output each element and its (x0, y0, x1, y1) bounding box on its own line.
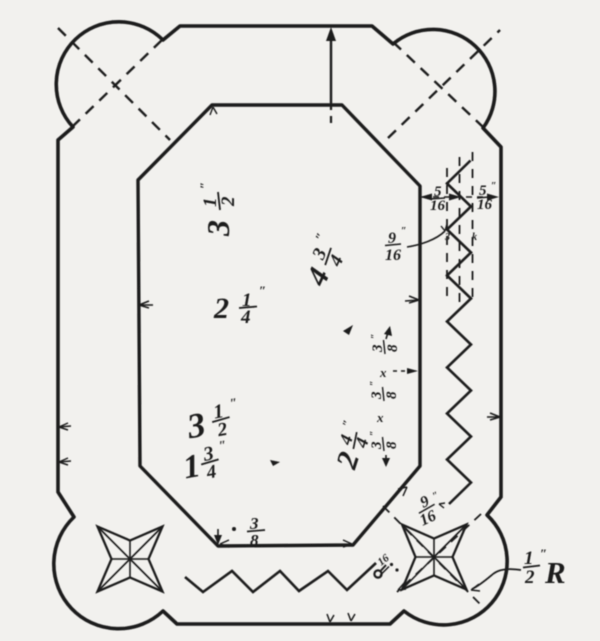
svg-text:8: 8 (250, 531, 259, 550)
svg-text:2: 2 (213, 292, 229, 325)
svg-text:16: 16 (430, 198, 446, 214)
svg-text:″: ″ (491, 181, 497, 192)
svg-text:″: ″ (445, 181, 451, 192)
svg-text:16: 16 (385, 247, 401, 264)
svg-text:8: 8 (384, 391, 400, 399)
svg-text:16: 16 (477, 197, 493, 213)
svg-text:x: x (376, 410, 384, 425)
svg-text:3: 3 (200, 220, 236, 237)
svg-text:″: ″ (369, 380, 380, 386)
svg-text:k: k (472, 232, 477, 243)
svg-text:″: ″ (370, 333, 381, 339)
svg-text:″: ″ (401, 226, 407, 237)
svg-text:2: 2 (218, 196, 239, 207)
svg-text:x: x (379, 365, 387, 380)
svg-text:″: ″ (197, 182, 212, 189)
svg-text:″: ″ (259, 283, 266, 298)
svg-text:R: R (544, 555, 566, 590)
svg-text:2: 2 (524, 567, 535, 588)
svg-text:3: 3 (444, 232, 450, 243)
svg-text:4: 4 (240, 307, 251, 328)
svg-text:8: 8 (384, 441, 400, 449)
svg-text:″: ″ (369, 430, 380, 436)
svg-text:8: 8 (385, 344, 401, 352)
